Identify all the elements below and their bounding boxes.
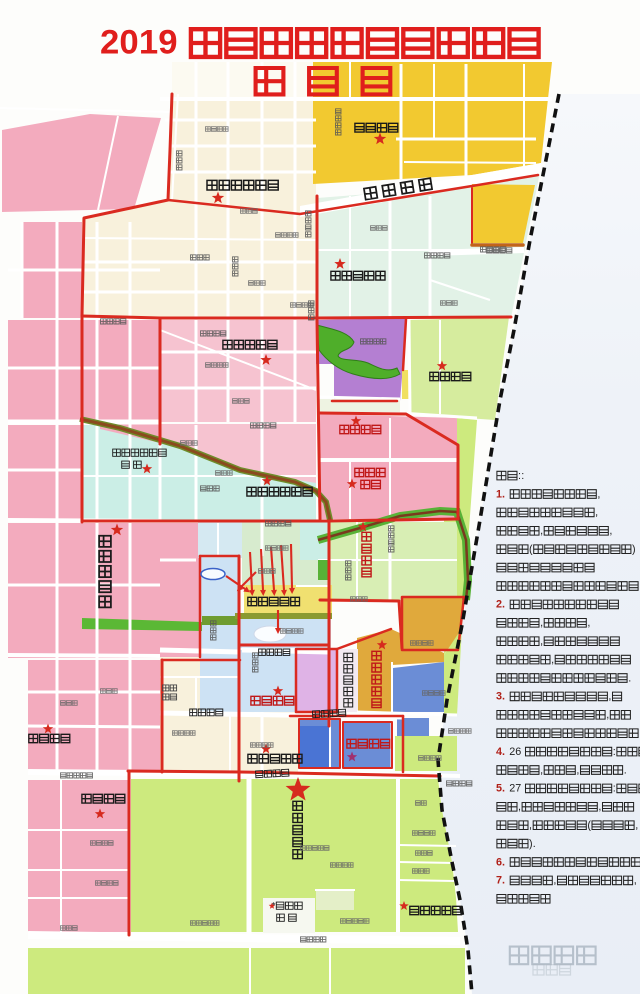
svg-text:0: 0 (119, 24, 138, 62)
svg-text:,: , (540, 525, 543, 537)
svg-text:): ) (632, 544, 636, 556)
svg-text:,: , (634, 875, 637, 887)
svg-text:,: , (576, 764, 579, 776)
svg-text:9: 9 (158, 24, 177, 62)
svg-text::: : (613, 783, 616, 795)
svg-text:.: . (624, 764, 627, 776)
svg-text:,: , (598, 801, 601, 813)
svg-text:.: . (628, 672, 631, 684)
svg-text:.: . (502, 746, 505, 758)
svg-text:(: ( (529, 544, 533, 556)
svg-text:,: , (518, 801, 521, 813)
svg-text:,: , (597, 488, 600, 500)
svg-text:6: 6 (515, 746, 521, 758)
svg-text:.: . (502, 875, 505, 887)
svg-text:,: , (551, 654, 554, 666)
svg-text:,: , (635, 820, 638, 832)
svg-text:,: , (553, 875, 556, 887)
svg-text:.: . (502, 691, 505, 703)
svg-text:.: . (502, 488, 505, 500)
svg-text::: : (521, 470, 524, 482)
svg-text:,: , (540, 636, 543, 648)
svg-text:,: , (606, 709, 609, 721)
svg-text:,: , (587, 617, 590, 629)
svg-text:7: 7 (515, 783, 521, 795)
svg-text:.: . (502, 599, 505, 611)
svg-text:.: . (502, 856, 505, 868)
svg-text:(: ( (587, 820, 591, 832)
svg-text::: : (613, 746, 616, 758)
svg-text:1: 1 (139, 24, 158, 62)
svg-text:,: , (529, 820, 532, 832)
svg-text:,: , (608, 691, 611, 703)
svg-text:,: , (540, 617, 543, 629)
svg-text:.: . (502, 783, 505, 795)
svg-text:,: , (595, 507, 598, 519)
svg-text:,: , (540, 764, 543, 776)
svg-text:2: 2 (100, 24, 119, 62)
svg-text:*: * (272, 900, 276, 910)
svg-text:.: . (533, 838, 536, 850)
svg-text:,: , (609, 525, 612, 537)
